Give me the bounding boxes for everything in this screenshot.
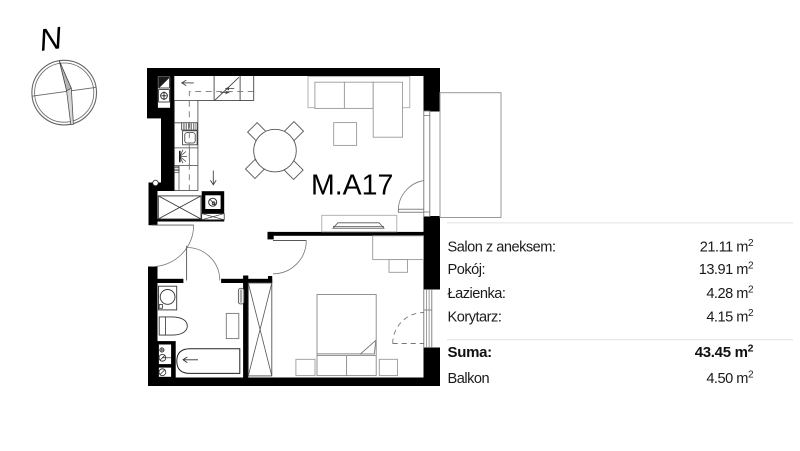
svg-text:N: N	[37, 20, 65, 58]
svg-text:21.11 m2: 21.11 m2	[700, 238, 754, 256]
svg-text:Suma:: Suma:	[448, 344, 492, 361]
svg-text:M.A17: M.A17	[311, 170, 393, 202]
svg-text:Balkon: Balkon	[448, 371, 490, 387]
svg-text:Łazienka:: Łazienka:	[448, 286, 506, 302]
svg-text:Salon z aneksem:: Salon z aneksem:	[448, 240, 556, 256]
svg-text:4.50 m2: 4.50 m2	[706, 370, 754, 388]
svg-text:43.45 m2: 43.45 m2	[695, 342, 754, 361]
svg-text:Pokój:: Pokój:	[448, 262, 486, 278]
svg-text:13.91 m2: 13.91 m2	[699, 261, 754, 279]
svg-text:4.28 m2: 4.28 m2	[706, 284, 754, 302]
svg-text:Korytarz:: Korytarz:	[448, 310, 502, 326]
svg-text:4.15 m2: 4.15 m2	[706, 308, 754, 326]
